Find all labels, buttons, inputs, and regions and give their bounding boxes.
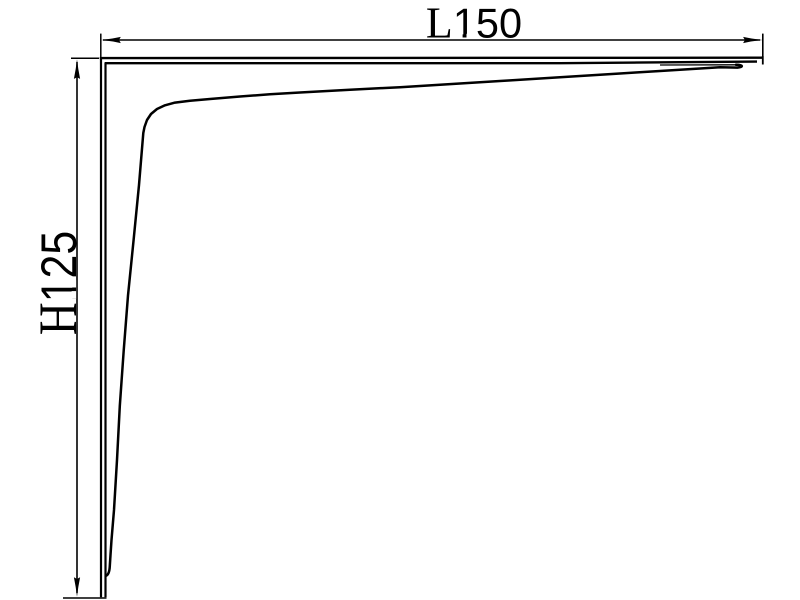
svg-text:L150: L150 [426,0,522,48]
svg-text:H125: H125 [28,231,87,335]
